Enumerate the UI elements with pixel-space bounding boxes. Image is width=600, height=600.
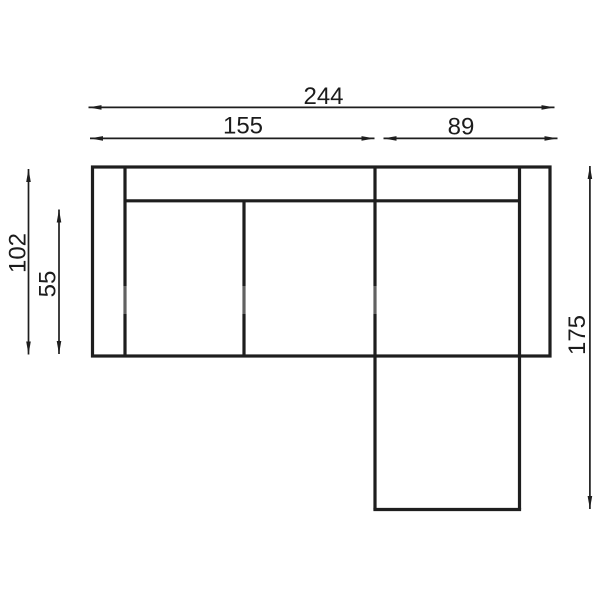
svg-text:175: 175 [564, 315, 591, 355]
svg-text:102: 102 [4, 233, 31, 273]
svg-text:244: 244 [303, 83, 343, 110]
svg-text:89: 89 [448, 114, 475, 141]
svg-text:55: 55 [35, 271, 62, 298]
svg-text:155: 155 [223, 113, 263, 140]
